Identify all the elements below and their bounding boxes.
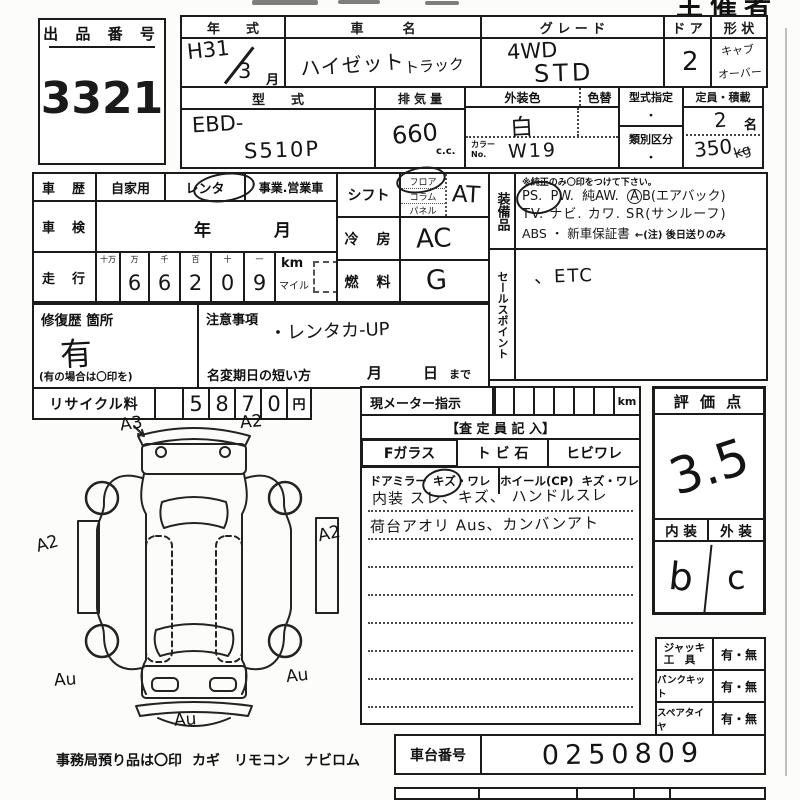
equipment-line2: TV. ナビ. カワ. SR(サンルーフ) — [522, 206, 760, 224]
evaluation-score: 3.5 — [642, 401, 777, 532]
equip-abs-warranty: ABS ・ 新車保証書 — [522, 226, 630, 241]
model-code-cell: 型 式 EBD- S510P — [180, 86, 376, 169]
jack-tools-label: ジャッキ 工 具 — [657, 639, 714, 669]
color-change-label: 色替 — [579, 88, 618, 106]
type-spec-value: ・ — [620, 106, 682, 122]
mileage-digit: 0 — [212, 266, 243, 299]
displacement-unit: c.c. — [436, 146, 455, 157]
sales-point-value: 、ETC — [534, 261, 595, 289]
office-kept-items-label: 事務局預り品は〇印 — [56, 750, 182, 770]
shape-value-2: オーバー — [717, 63, 762, 82]
capacity-value: 2 — [713, 108, 727, 133]
car-name-value: ハイゼット — [299, 45, 405, 81]
shape-value-1: キャブ — [720, 41, 754, 59]
vehicle-damage-diagram: A3 A2 A2 A2 Au Au Au — [34, 408, 358, 748]
rename-day-unit: 日 — [423, 362, 438, 383]
ac-value: AC — [415, 223, 452, 254]
chassis-number-box: 車台番号 0250809 — [394, 734, 766, 775]
car-name-cell: 車 名 ハイゼット トラック — [284, 15, 482, 88]
capacity-label: 定員・積載 — [684, 88, 762, 108]
load-unit: kg — [732, 142, 753, 162]
model-code-value-1: EBD- — [191, 111, 244, 138]
chassis-number-value: 0250809 — [482, 734, 765, 776]
cutoff-title-mark — [425, 1, 459, 5]
damage-mark-au-right: Au — [285, 665, 309, 687]
color-no-label: カラー No. — [471, 140, 495, 160]
equip-aw: 純AW. — [582, 189, 619, 204]
ac-label: 冷 房 — [338, 218, 401, 259]
repair-history-box: 修復歴 箇所 有 (有の場合は〇印を) — [32, 303, 199, 389]
exterior-color-cell: 外装色 色替 白 カラー No. W19 — [464, 86, 620, 169]
fuel-label: 燃 料 — [338, 261, 401, 303]
shape-label: 形 状 — [712, 17, 766, 39]
paper-edge-line — [785, 28, 787, 776]
assessor-entry-label: 【査 定 員 記 入】 — [362, 414, 639, 438]
color-no-value: W19 — [508, 139, 558, 163]
meter-km-unit: km — [613, 388, 639, 414]
exterior-label: 外 装 — [709, 520, 763, 540]
exterior-grade: c — [707, 540, 766, 614]
shift-value: AT — [451, 181, 480, 208]
shaken-year-unit: 年 — [194, 216, 211, 241]
history-label: 車 歴 — [34, 174, 97, 200]
digit-header-10k: 万 — [121, 253, 148, 266]
door-label: ド ア — [665, 17, 710, 39]
chassis-number-label: 車台番号 — [396, 736, 482, 773]
damage-mark-a2-top: A2 — [239, 411, 263, 433]
year-label: 年 式 — [182, 17, 284, 39]
sales-point-label-cell: セールスポイント — [488, 248, 516, 381]
class-division-label: 類別区分 — [620, 127, 682, 148]
assessor-comments-area: 内装 スレ、キズ、 ハンドルスレ 荷台アオリ Aus、カンバンアト — [362, 492, 639, 723]
capacity-cell: 定員・積載 2 名 350 kg — [682, 86, 764, 169]
mileage-digit: 9 — [245, 266, 274, 299]
displacement-cell: 排 気 量 660 c.c. — [374, 86, 466, 169]
vehicle-outline-drawing — [34, 408, 358, 748]
shaken-label: 車 検 — [34, 202, 97, 251]
sales-point-label: セールスポイント — [494, 271, 510, 359]
digit-header-100k: 十万 — [97, 253, 119, 266]
interior-grade: b — [651, 539, 712, 614]
equip-airbag-rest: B(エアバック) — [642, 189, 726, 204]
year-cell: 年 式 H31 3 月 — [180, 15, 286, 88]
grade-label: グ レ ー ド — [482, 17, 663, 39]
color-no-divider — [466, 136, 618, 138]
mileage-label: 走 行 — [34, 253, 97, 301]
type-spec-cell: 型式指定 ・ 類別区分 ・ — [618, 86, 684, 169]
damage-mark-au-bottom: Au — [173, 709, 197, 731]
shaken-month-unit: 月 — [274, 216, 291, 241]
puncture-kit-label: パンクキット — [657, 671, 714, 701]
caution-value: ・レンタカ-UP — [269, 315, 390, 345]
damage-mark-au-left: Au — [53, 669, 77, 691]
exhibit-number-box: 出 品 番 号 3321 — [38, 18, 166, 165]
equip-warranty-note: ←(注) 後日送りのみ — [635, 230, 726, 241]
puncture-kit-value: 有・無 — [714, 671, 764, 701]
type-spec-label: 型式指定 — [620, 88, 682, 106]
shift-option-panel: パネル — [401, 204, 445, 217]
mileage-km-unit: km — [281, 256, 303, 271]
exhibit-number-value: 3321 — [40, 48, 164, 148]
repair-history-label: 修復歴 箇所 — [41, 309, 113, 329]
equipment-label: 装備品 — [493, 192, 512, 231]
equipment-line3: ABS ・ 新車保証書 ←(注) 後日送りのみ — [522, 224, 760, 244]
history-table: 車 歴 自家用 レンタ 事業.営業車 車 検 年 月 走 行 十万 万6 千6 … — [32, 172, 338, 303]
rename-deadline-label: 名変期日の短い方 — [207, 365, 311, 384]
history-private: 自家用 — [97, 174, 166, 200]
grade-value-2: STD — [534, 58, 595, 88]
mileage-digit: 6 — [121, 266, 148, 299]
exhibit-number-label: 出 品 番 号 — [40, 20, 164, 46]
spare-tire-value: 有・無 — [714, 703, 764, 734]
caution-label: 注意事項 — [206, 309, 258, 328]
shape-cell: 形 状 キャブ オーバー — [710, 15, 768, 88]
front-glass-label: Fガラス — [361, 439, 458, 467]
caution-box: 注意事項 ・レンタカ-UP 名変期日の短い方 月 日 まで — [197, 303, 490, 389]
displacement-label: 排 気 量 — [376, 88, 464, 110]
exterior-color-value: 白 — [509, 107, 534, 142]
door-cell: ド ア 2 — [663, 15, 712, 88]
cutoff-title-mark — [252, 0, 318, 5]
sales-point-box: 、ETC — [514, 248, 768, 381]
evaluation-box: 評 価 点 3.5 内 装 外 装 b c — [652, 386, 766, 615]
mileage-digit: 6 — [150, 266, 179, 299]
repair-history-note: (有の場合は〇印を) — [39, 369, 133, 384]
current-meter-label: 現メーター指示 — [362, 388, 492, 414]
color-change-divider — [577, 108, 579, 136]
door-value: 2 — [682, 47, 699, 77]
cutoff-bottom-table — [394, 787, 766, 800]
auction-sheet: 主催者用 出 品 番 号 3321 年 式 H31 3 月 車 名 ハイゼット … — [0, 0, 800, 800]
fuel-value: G — [425, 264, 448, 296]
mileage-mile-unit: マイル — [279, 277, 309, 292]
mileage-digit: 2 — [181, 266, 210, 299]
equipment-label-cell: 装備品 — [488, 172, 516, 250]
digit-header-1: 一 — [245, 253, 274, 266]
car-name-label: 車 名 — [286, 17, 480, 39]
model-code-value-2: S510P — [244, 137, 321, 164]
digit-header-10: 十 — [212, 253, 243, 266]
year-value: H31 — [186, 36, 231, 64]
year-month-value: 3 — [238, 59, 251, 83]
displacement-value: 660 — [391, 118, 439, 150]
jack-tools-value: 有・無 — [714, 639, 764, 669]
equip-airbag-circled-a: A — [627, 189, 642, 204]
history-commercial: 事業.営業車 — [246, 174, 336, 200]
class-division-value: ・ — [620, 148, 682, 164]
assessor-note-2: 荷台アオリ Aus、カンバンアト — [370, 512, 599, 537]
office-kept-items-list: カギ リモコン ナビロム — [192, 750, 360, 770]
assessor-note-1: 内装 スレ、キズ、 ハンドルスレ — [372, 484, 608, 509]
load-value: 350 — [693, 134, 733, 162]
model-code-label: 型 式 — [182, 88, 374, 110]
spare-tire-label: スペアタイヤ — [657, 703, 714, 734]
damage-mark-a3: A3 — [119, 413, 144, 436]
rename-month-unit: 月 — [367, 362, 382, 383]
shift-label: シフト — [338, 174, 401, 216]
rename-made-label: まで — [449, 366, 471, 382]
stone-chip-label: ト ビ 石 — [458, 440, 547, 466]
digit-header-100: 百 — [181, 253, 210, 266]
crack-label: ヒビワレ — [547, 440, 639, 466]
cutoff-title-mark — [338, 0, 380, 4]
exterior-color-label: 外装色 — [466, 88, 579, 106]
car-name-value2: トラック — [403, 53, 464, 78]
capacity-unit: 名 — [744, 114, 757, 133]
meter-assessor-box: 現メーター指示 km 【査 定 員 記 入】 Fガラス ト ビ 石 ヒビワレ ド… — [360, 386, 641, 725]
digit-header-1k: 千 — [150, 253, 179, 266]
grade-cell: グ レ ー ド 4WD STD — [480, 15, 665, 88]
accessories-box: ジャッキ 工 具 有・無 パンクキット 有・無 スペアタイヤ 有・無 — [655, 637, 766, 736]
